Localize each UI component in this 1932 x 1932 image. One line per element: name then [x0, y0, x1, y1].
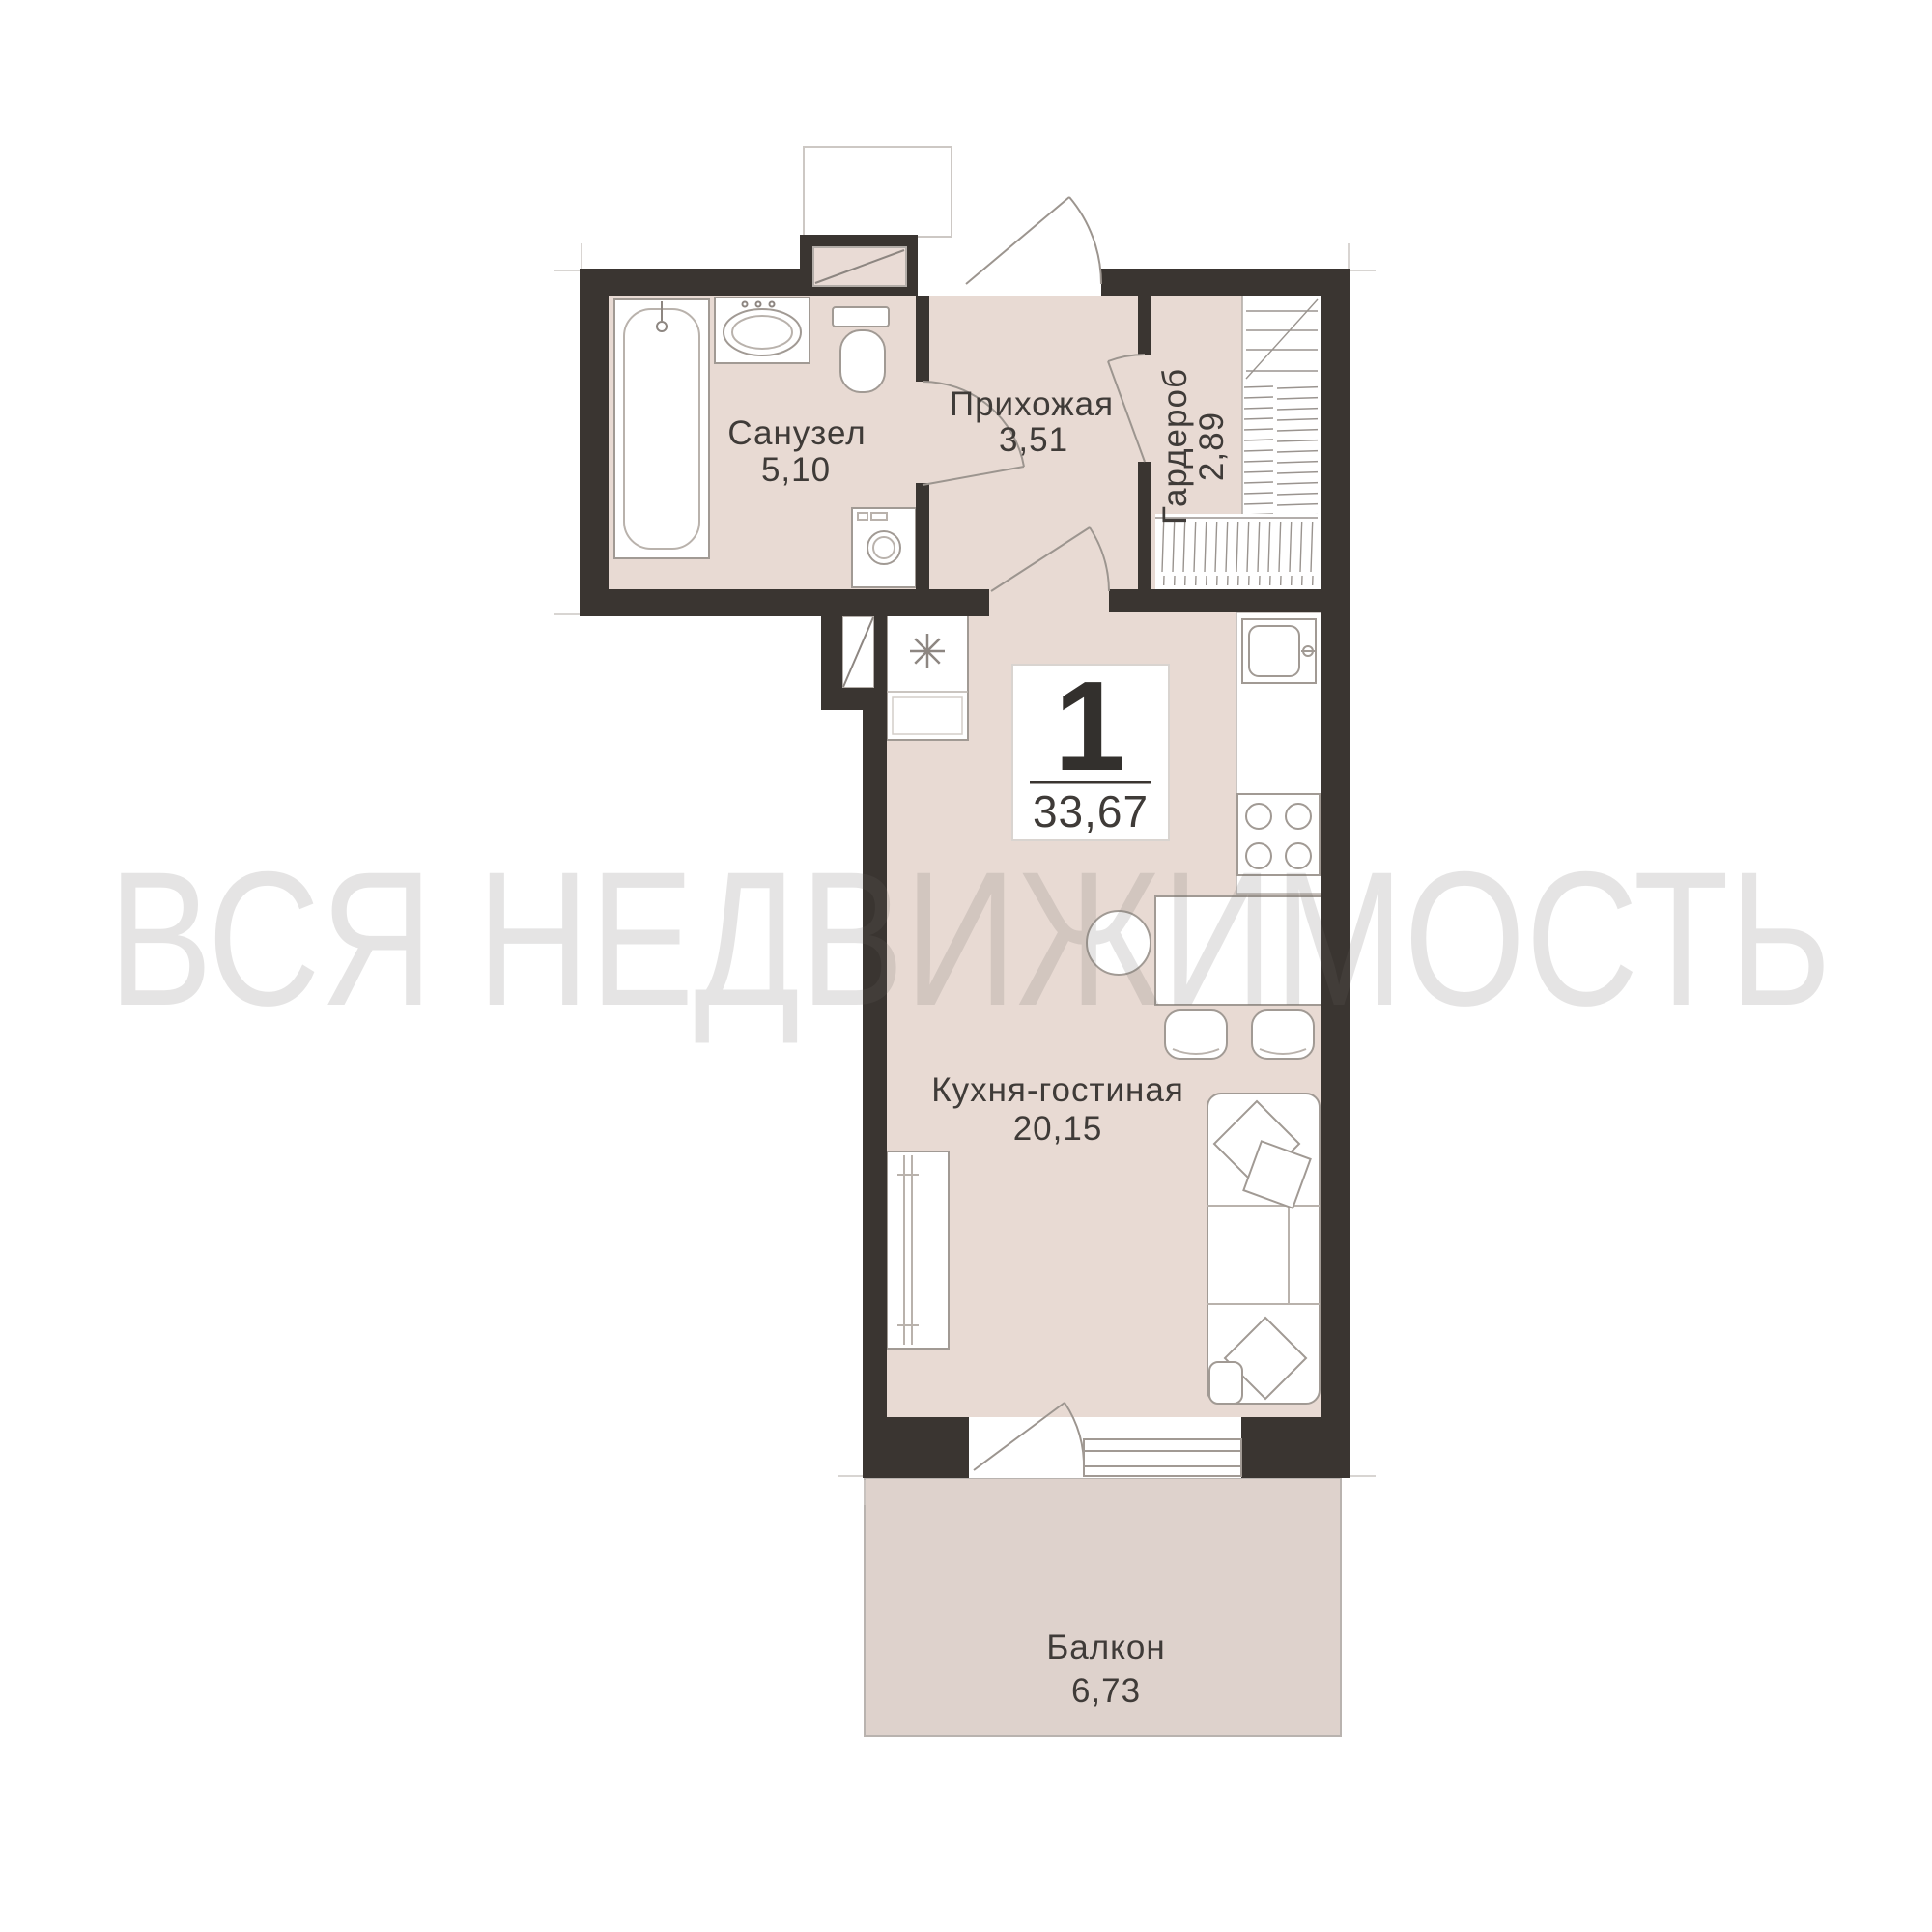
label-bathroom: Санузел	[727, 414, 866, 452]
wall	[580, 269, 609, 616]
area-wardrobe: 2,89	[1193, 412, 1231, 481]
watermark: ВСЯ НЕДВИЖИМОСТЬ	[108, 832, 1832, 1045]
bathroom-door-threshold	[916, 382, 929, 483]
wall	[874, 612, 887, 688]
label-kitchen-living: Кухня-гостиная	[931, 1071, 1184, 1109]
area-bathroom: 5,10	[761, 451, 831, 489]
wall	[1109, 589, 1321, 612]
wall	[916, 296, 929, 382]
washing-machine-icon	[852, 508, 916, 587]
entrance-opening	[918, 269, 1101, 296]
wall	[863, 1417, 969, 1478]
bathtub-icon	[614, 299, 709, 558]
area-kitchen-living: 20,15	[1013, 1110, 1103, 1148]
wall	[916, 483, 929, 589]
wardrobe-hangers-icon	[1155, 522, 1318, 585]
wall	[580, 269, 807, 296]
vent-shaft-icon	[813, 247, 906, 286]
wall	[580, 589, 989, 616]
wardrobe-door-threshold	[1138, 355, 1151, 462]
label-balcony: Балкон	[1046, 1629, 1165, 1666]
label-wardrobe: Гардероб	[1156, 368, 1194, 525]
sink-icon	[715, 298, 810, 363]
badge-total-area: 33,67	[1033, 786, 1149, 837]
sofa-icon	[1207, 1094, 1320, 1404]
stairwell-outline	[804, 147, 952, 237]
wall	[863, 710, 887, 1417]
wall	[821, 688, 887, 710]
wardrobe-hangers-icon	[1244, 384, 1318, 514]
badge-rooms-count: 1	[1054, 655, 1124, 797]
wall	[1241, 1417, 1346, 1478]
wall	[1101, 269, 1350, 296]
kitchen-door-threshold	[989, 589, 1109, 616]
vent-shaft-icon	[842, 616, 874, 688]
label-hallway: Прихожая	[950, 385, 1114, 423]
wall	[1138, 462, 1151, 589]
area-balcony: 6,73	[1071, 1672, 1141, 1710]
floor-plan: 1 33,67 Санузел 5,10 Прихожая 3,51 Гарде…	[0, 0, 1932, 1932]
floorplan-page: 1 33,67 Санузел 5,10 Прихожая 3,51 Гарде…	[0, 0, 1932, 1932]
unit-badge: 1 33,67	[1012, 655, 1169, 840]
area-hallway: 3,51	[999, 421, 1068, 459]
cabinet-icon	[887, 1151, 949, 1349]
window-icon	[1084, 1439, 1241, 1476]
toilet-icon	[833, 307, 889, 392]
wall	[1138, 296, 1151, 355]
fridge-snowflake-icon	[887, 612, 968, 740]
